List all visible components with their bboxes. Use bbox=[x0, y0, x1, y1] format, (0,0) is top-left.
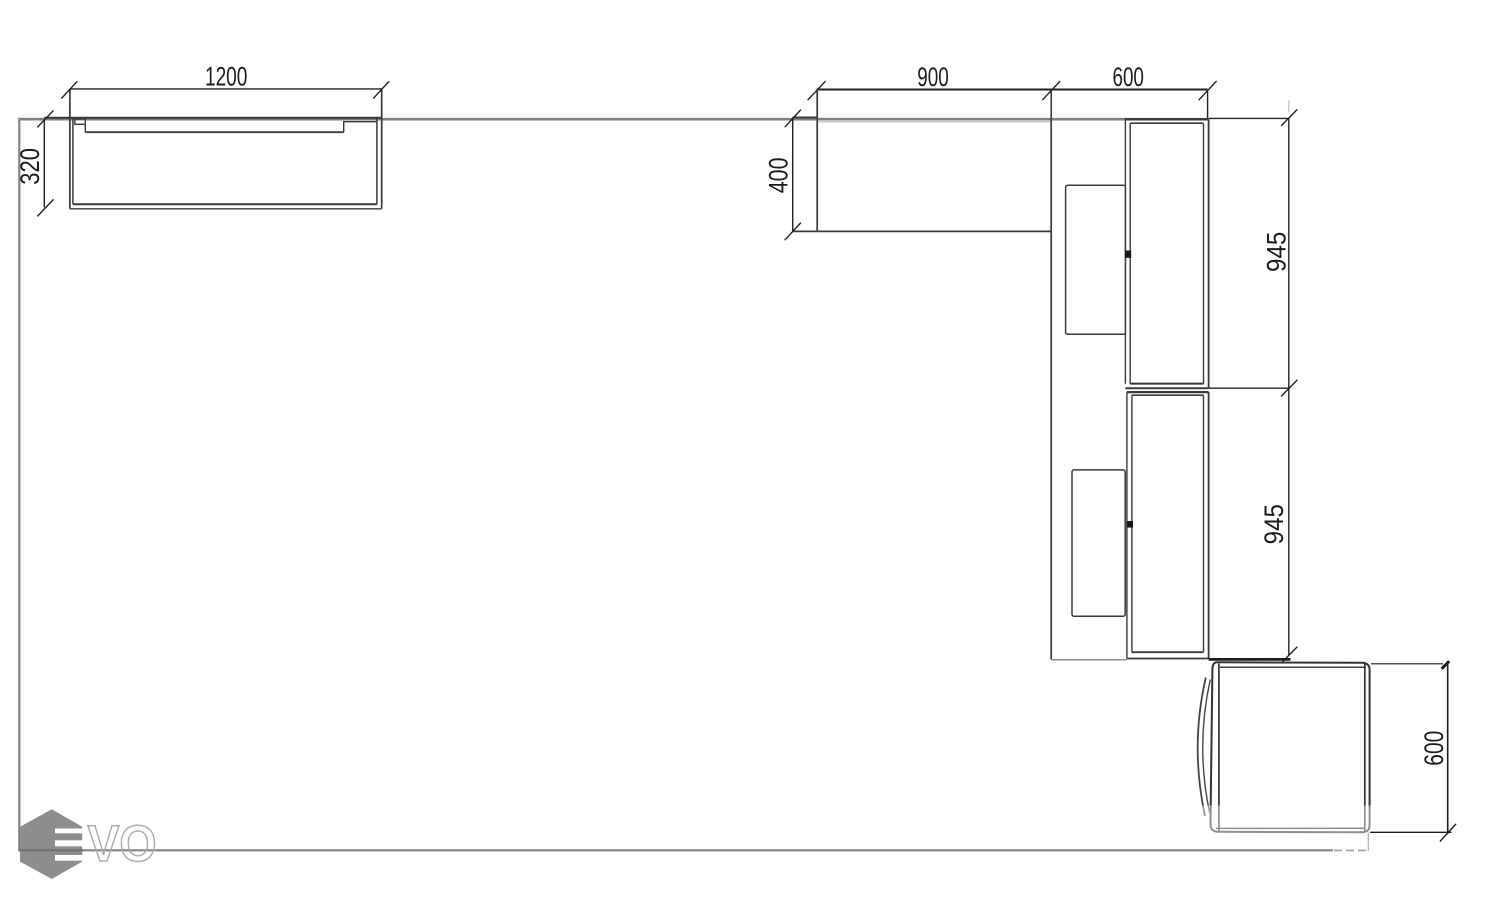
svg-text:320: 320 bbox=[15, 148, 45, 185]
svg-text:945: 945 bbox=[1262, 232, 1292, 272]
svg-text:600: 600 bbox=[1419, 731, 1449, 766]
svg-text:1200: 1200 bbox=[205, 62, 248, 92]
svg-text:600: 600 bbox=[1112, 62, 1144, 92]
svg-text:945: 945 bbox=[1259, 504, 1289, 544]
svg-text:900: 900 bbox=[917, 62, 949, 92]
svg-text:VO: VO bbox=[88, 815, 157, 872]
svg-text:400: 400 bbox=[764, 158, 794, 194]
